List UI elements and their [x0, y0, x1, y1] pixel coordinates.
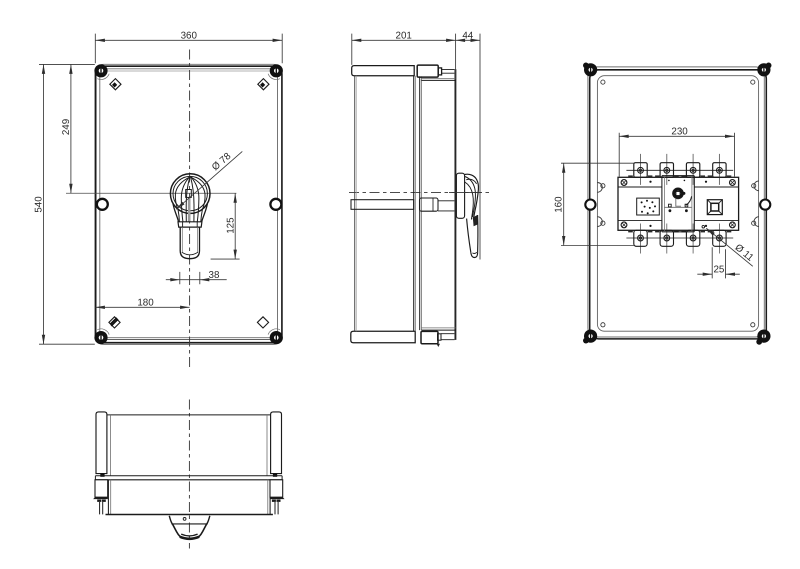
svg-text:201: 201	[396, 30, 412, 41]
svg-text:180: 180	[137, 297, 154, 308]
svg-text:230: 230	[671, 126, 688, 137]
svg-text:160: 160	[554, 196, 565, 213]
svg-text:540: 540	[33, 196, 44, 213]
svg-text:44: 44	[462, 30, 473, 41]
svg-text:249: 249	[61, 119, 72, 135]
svg-text:125: 125	[225, 217, 236, 234]
svg-text:38: 38	[209, 270, 220, 281]
svg-text:360: 360	[181, 30, 198, 41]
svg-text:25: 25	[713, 264, 724, 275]
